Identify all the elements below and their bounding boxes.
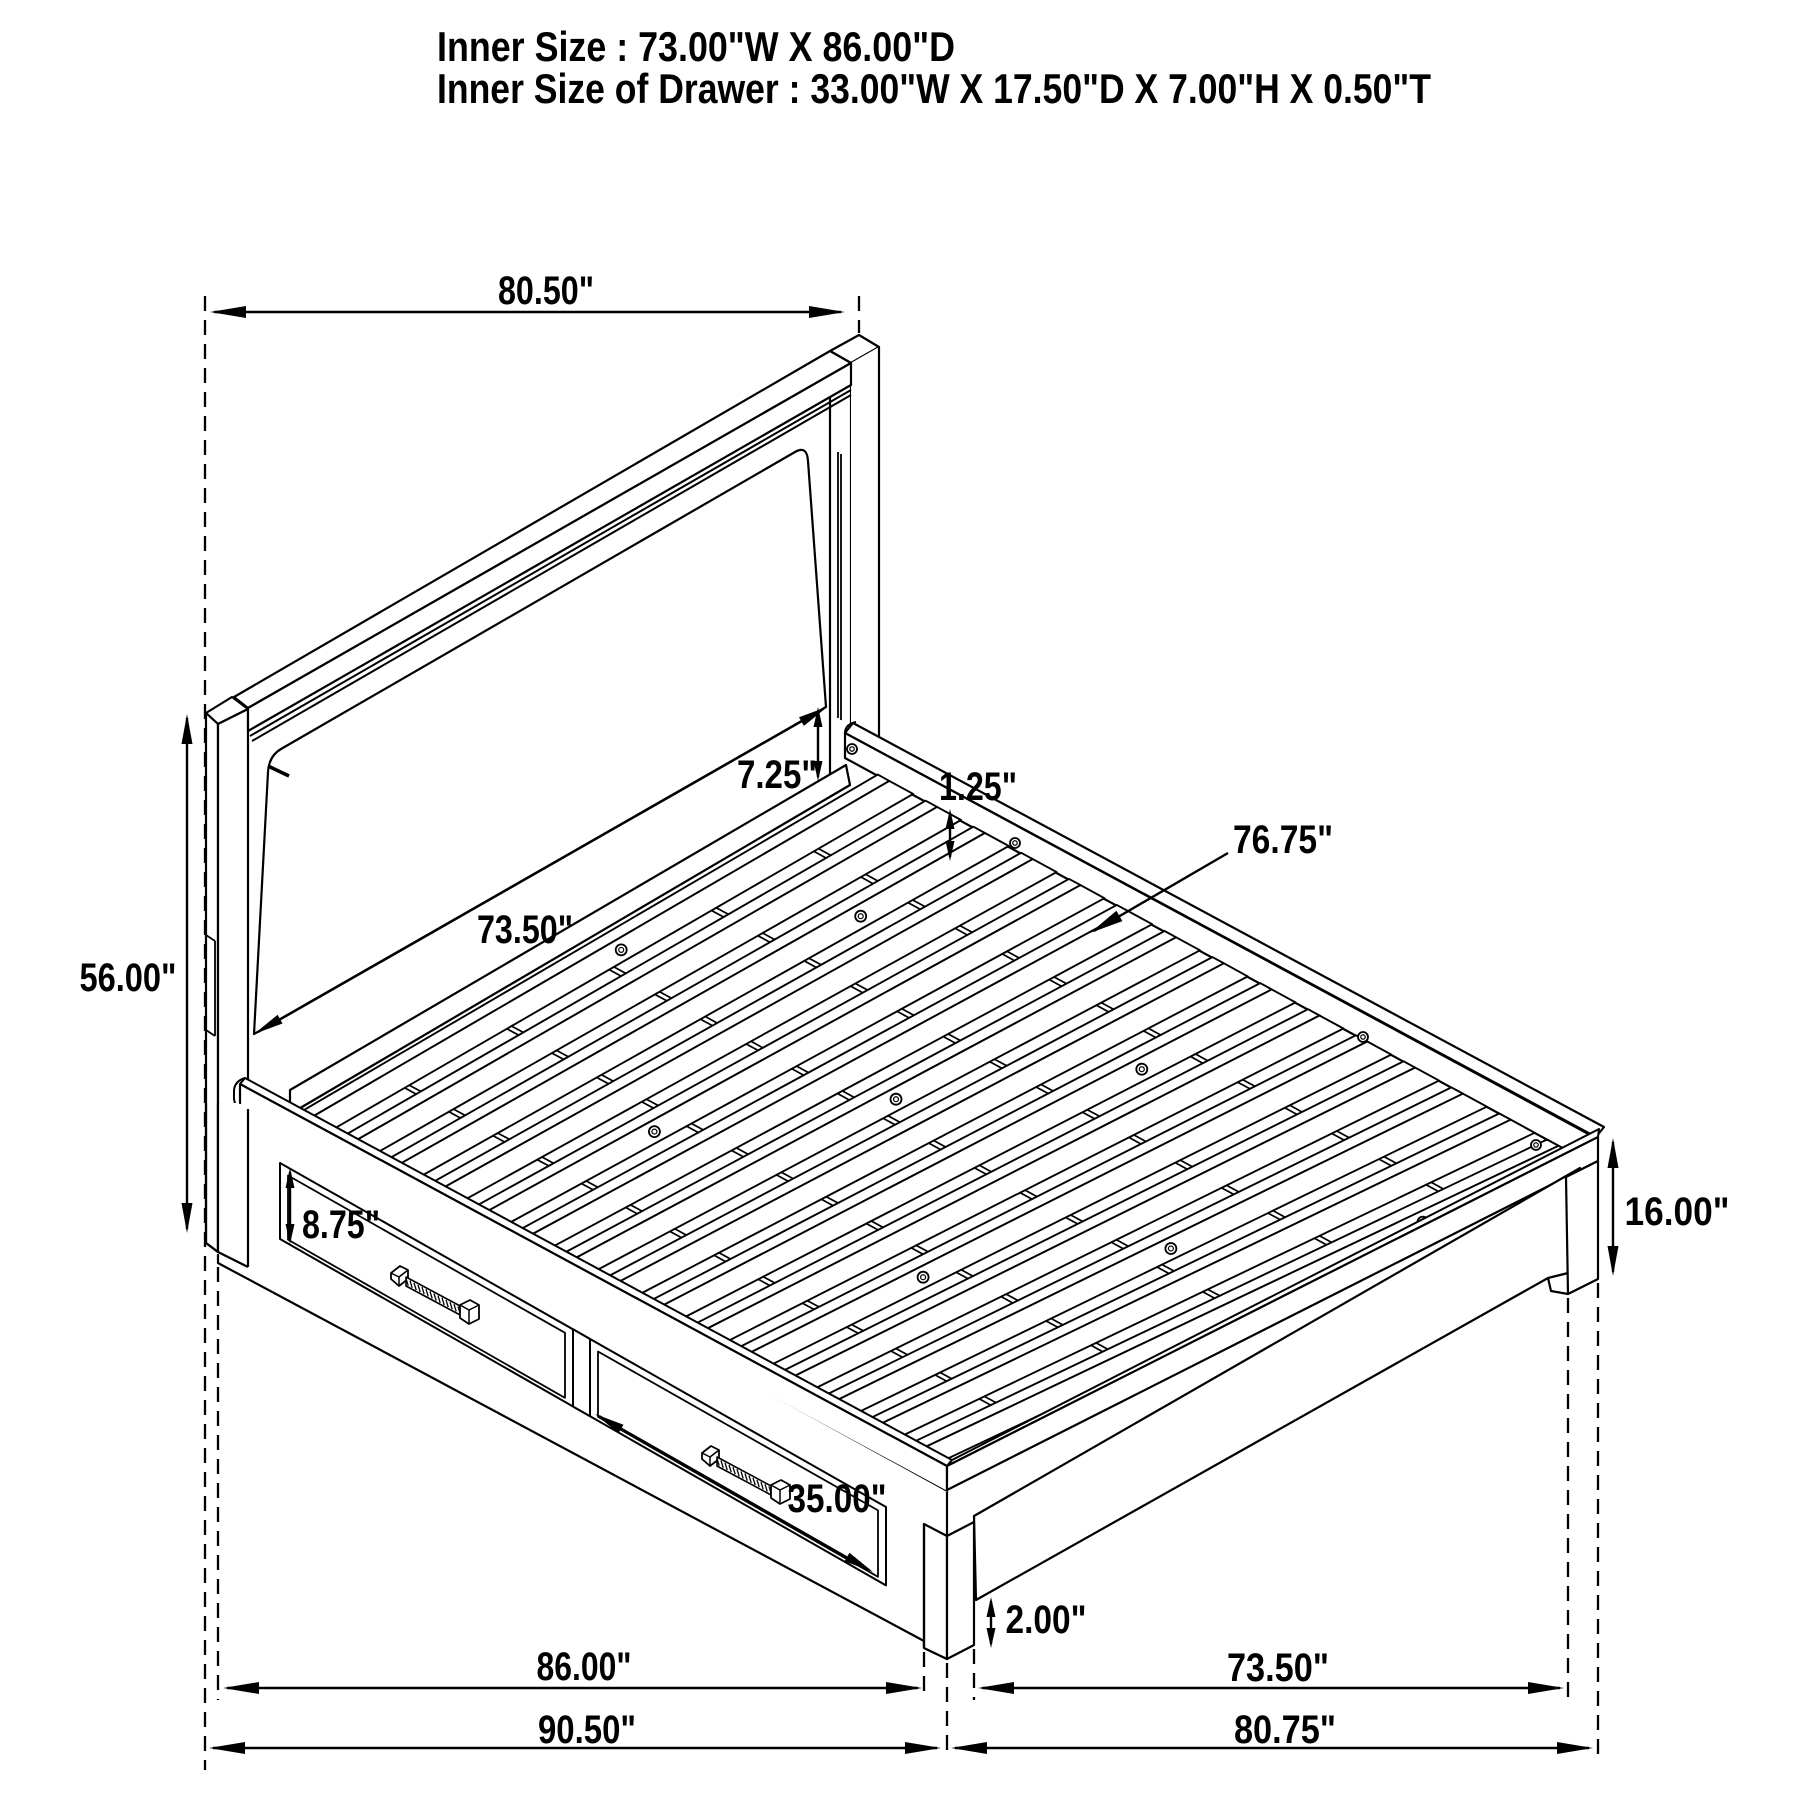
svg-text:73.50": 73.50"	[1227, 1646, 1329, 1690]
svg-text:7.25": 7.25"	[737, 753, 817, 797]
svg-text:80.75": 80.75"	[1234, 1708, 1336, 1752]
svg-text:80.50": 80.50"	[498, 269, 594, 313]
svg-text:56.00": 56.00"	[80, 956, 177, 1000]
svg-text:8.75": 8.75"	[302, 1203, 380, 1247]
svg-text:Inner Size of Drawer : 33.00"W: Inner Size of Drawer : 33.00"W X 17.50"D…	[437, 65, 1431, 112]
svg-text:90.50": 90.50"	[538, 1708, 636, 1752]
svg-text:Inner Size : 73.00"W X 86.00"D: Inner Size : 73.00"W X 86.00"D	[437, 23, 955, 70]
svg-text:35.00": 35.00"	[788, 1477, 887, 1521]
svg-text:73.50": 73.50"	[477, 908, 573, 952]
svg-text:1.25": 1.25"	[939, 765, 1017, 809]
svg-text:2.00": 2.00"	[1006, 1598, 1087, 1642]
svg-text:76.75": 76.75"	[1233, 818, 1333, 862]
svg-text:16.00": 16.00"	[1625, 1190, 1730, 1234]
svg-text:86.00": 86.00"	[537, 1645, 632, 1689]
